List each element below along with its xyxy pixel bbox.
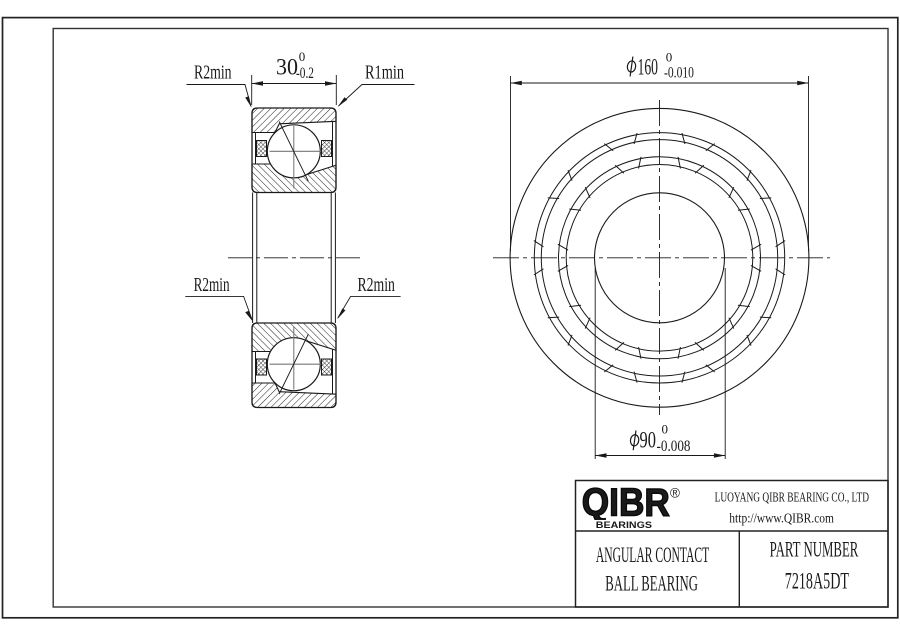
svg-text:-0.2: -0.2 [296, 65, 314, 82]
svg-text:0: 0 [666, 50, 673, 65]
svg-text:90: 90 [640, 428, 656, 453]
svg-text:BALL BEARING: BALL BEARING [605, 570, 698, 595]
svg-text:30: 30 [276, 55, 298, 80]
svg-text:QIBR: QIBR [582, 482, 670, 525]
svg-text:0: 0 [299, 49, 306, 64]
svg-text:®: ® [670, 486, 680, 501]
svg-text:BEARINGS: BEARINGS [596, 520, 652, 531]
svg-text:R2min: R2min [194, 274, 230, 296]
svg-text:PART NUMBER: PART NUMBER [770, 536, 859, 561]
svg-text:-0.008: -0.008 [657, 438, 691, 455]
svg-text:ANGULAR CONTACT: ANGULAR CONTACT [596, 542, 710, 567]
svg-text:160: 160 [638, 55, 659, 80]
svg-text:LUOYANG QIBR BEARING CO., LTD: LUOYANG QIBR BEARING CO., LTD [715, 490, 869, 505]
svg-text:0: 0 [661, 422, 668, 437]
svg-text:R1min: R1min [365, 62, 404, 84]
svg-text:R2min: R2min [194, 62, 232, 84]
svg-text:7218A5DT: 7218A5DT [785, 569, 849, 594]
svg-text:-0.010: -0.010 [664, 65, 694, 82]
svg-text:http://www.QIBR.com: http://www.QIBR.com [729, 512, 834, 527]
svg-text:R2min: R2min [357, 274, 395, 296]
